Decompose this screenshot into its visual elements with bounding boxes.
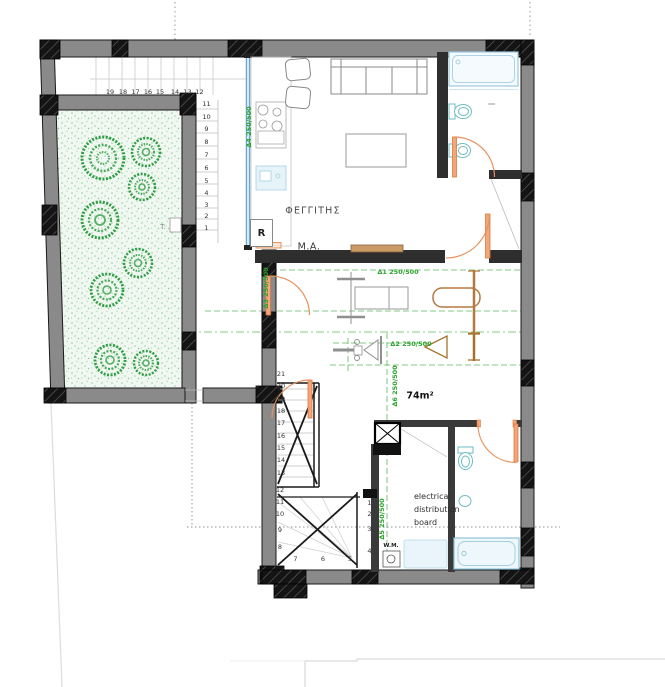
door-wc (477, 420, 518, 463)
beam-label-d6: Δ6 250/500 (391, 365, 399, 406)
bench-press (337, 272, 408, 324)
washing-machine-icon (383, 551, 400, 567)
stair-number: 11 (202, 100, 210, 108)
stair-number: 8 (204, 138, 208, 146)
brown-bench (433, 270, 480, 334)
stair-number: 4 (367, 547, 371, 555)
stair-number: 1 (367, 499, 371, 507)
stair-number: 16 (277, 432, 285, 440)
stair-number: 6 (321, 555, 325, 563)
stair-number: 21 (277, 370, 285, 378)
stair-number: 19 (277, 395, 285, 403)
stair-number: 3 (204, 201, 208, 209)
stair-number: 7 (293, 555, 297, 563)
fridge-box: R (250, 219, 273, 247)
beam-label-d3: Δ3 250/500 (262, 267, 270, 308)
toilet-wc (458, 447, 473, 470)
stair-number: 3 (367, 525, 371, 533)
stair-number: 5 (204, 177, 208, 185)
label-room-ma: Μ.Α. (298, 242, 321, 253)
stair-number: 17 (131, 88, 139, 96)
wall-shelf (351, 245, 403, 252)
lower-stairwell (277, 383, 377, 568)
site-boundary-lines (51, 403, 665, 687)
electrical-line-2: distribution (414, 503, 460, 516)
stair-number: 16 (144, 88, 152, 96)
interior-walls (255, 52, 522, 572)
stair-number: 8 (278, 543, 282, 551)
gray-machine (333, 336, 381, 364)
stair-number: 2 (367, 510, 371, 518)
stair-number: 14 (171, 88, 179, 96)
stair-number: 7 (204, 151, 208, 159)
electrical-line-1: electrical (414, 490, 460, 503)
stair-number: 4 (204, 189, 208, 197)
elevator-shaft (373, 423, 401, 455)
bathtub-top (449, 52, 518, 90)
stair-number: 13 (183, 88, 191, 96)
beam-label-d1: Δ1 250/500 (377, 268, 418, 276)
stair-number: 18 (277, 407, 285, 415)
stair-number: 10 (202, 113, 210, 121)
stair-number: 2 (204, 212, 208, 220)
stair-number: 19 (106, 88, 114, 96)
sink-wc (459, 496, 471, 507)
door-gym-hall (446, 214, 490, 258)
label-area: 74m² (406, 391, 433, 402)
stair-number: 1 (204, 224, 208, 232)
stair-number: 9 (204, 125, 208, 133)
electrical-line-3: board (414, 516, 460, 529)
stair-number: 15 (277, 444, 285, 452)
brown-machine (425, 333, 480, 361)
swing-diagonals (401, 179, 519, 457)
beam-label-d5: Δ5 250/500 (378, 498, 386, 539)
floor-plan-canvas (0, 0, 665, 687)
garden-planter-box (170, 218, 181, 232)
stair-number: 12 (276, 486, 284, 494)
fridge-label: R (258, 228, 266, 239)
sofa (331, 59, 427, 94)
stair-number: 17 (277, 419, 285, 427)
stair-number: 9 (278, 526, 282, 534)
coffee-table (346, 134, 406, 167)
laundry-sink (404, 540, 447, 568)
floor-plan: ΦΕΓΓΙΤΗΣ Μ.Α. R 74m² electrical distribu… (0, 0, 665, 687)
stair-number: 11 (276, 498, 284, 506)
beam-label-d4: Δ4 250/500 (245, 106, 253, 147)
stair-number: 6 (204, 164, 208, 172)
stair-number: 20 (277, 382, 285, 390)
bathtub-bottom (454, 538, 519, 569)
stair-number: 13 (277, 469, 285, 477)
armchairs (285, 58, 311, 109)
gym-equipment (333, 270, 480, 364)
label-skylight: ΦΕΓΓΙΤΗΣ (285, 206, 340, 217)
stair-number: 14 (277, 456, 285, 464)
stair-number: 5 (348, 555, 352, 563)
stair-number: 18 (119, 88, 127, 96)
toilet-top (449, 104, 472, 119)
label-garden-t: T. (160, 223, 166, 231)
stair-number: 12 (195, 88, 203, 96)
stair-number: 10 (276, 510, 284, 518)
beam-label-d2: Δ2 250/500 (390, 340, 431, 348)
stair-number: 15 (156, 88, 164, 96)
label-washing-machine: W.M. (383, 543, 398, 549)
label-electrical-board: electrical distribution board (414, 490, 460, 529)
